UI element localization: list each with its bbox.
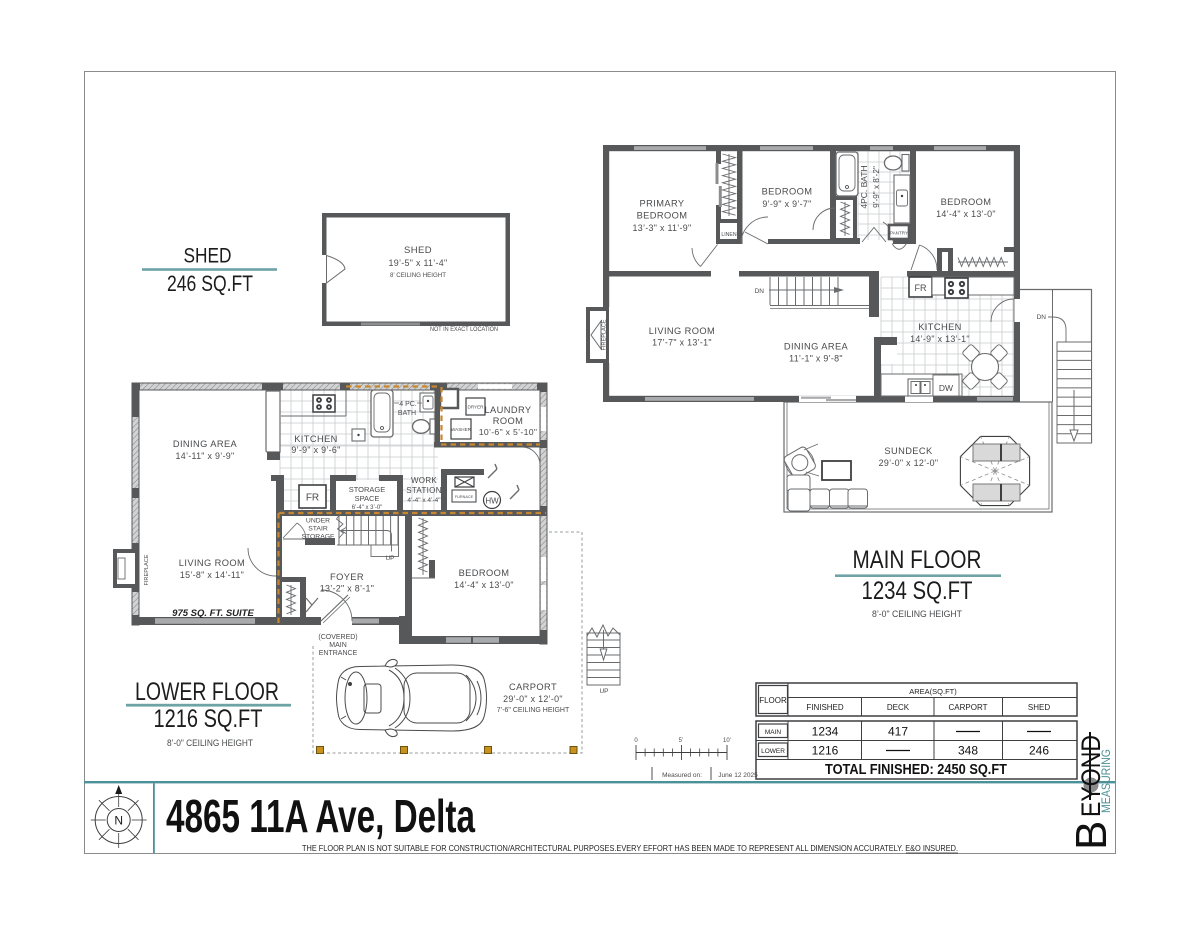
svg-text:N: N — [114, 814, 123, 828]
svg-text:8’-0" CEILING HEIGHT: 8’-0" CEILING HEIGHT — [872, 609, 962, 620]
svg-text:14’-9" x 13’-1": 14’-9" x 13’-1" — [910, 334, 970, 344]
svg-text:LOWER: LOWER — [761, 748, 785, 755]
svg-text:14’-4" x 13’-0": 14’-4" x 13’-0" — [454, 580, 514, 590]
svg-text:UNDER: UNDER — [306, 518, 330, 525]
svg-text:DECK: DECK — [887, 703, 910, 712]
svg-text:1216 SQ.FT: 1216 SQ.FT — [154, 705, 263, 733]
svg-text:KITCHEN: KITCHEN — [294, 434, 338, 444]
svg-text:14’-4" x 13’-0": 14’-4" x 13’-0" — [936, 209, 996, 219]
svg-text:(COVERED): (COVERED) — [318, 634, 357, 641]
svg-text:975 SQ. FT. SUITE: 975 SQ. FT. SUITE — [172, 608, 254, 619]
svg-text:SHED: SHED — [404, 245, 432, 256]
svg-text:4PC. BATH: 4PC. BATH — [859, 165, 869, 208]
svg-text:SUNDECK: SUNDECK — [884, 446, 933, 456]
svg-text:AREA(SQ.FT): AREA(SQ.FT) — [909, 687, 957, 696]
svg-text:246: 246 — [1029, 744, 1049, 758]
svg-text:13’-2" x 8’-1": 13’-2" x 8’-1" — [320, 584, 374, 594]
svg-text:LINEN: LINEN — [721, 232, 737, 238]
svg-text:19’-5" x 11’-4": 19’-5" x 11’-4" — [389, 258, 448, 268]
svg-text:SHED: SHED — [1028, 703, 1050, 712]
svg-text:FURNACE: FURNACE — [455, 495, 474, 499]
svg-text:8’-0" CEILING HEIGHT: 8’-0" CEILING HEIGHT — [167, 738, 253, 749]
svg-text:UP: UP — [385, 555, 394, 562]
svg-text:MEASURING: MEASURING — [1099, 749, 1113, 813]
svg-text:PRIMARY: PRIMARY — [640, 199, 685, 209]
svg-text:HW: HW — [485, 497, 499, 506]
svg-text:29’-0" x 12’-0": 29’-0" x 12’-0" — [503, 694, 563, 704]
svg-text:CARPORT: CARPORT — [949, 703, 988, 712]
svg-text:4 PC.: 4 PC. — [399, 401, 417, 408]
svg-text:ROOM: ROOM — [493, 416, 524, 426]
svg-text:7’-6" CEILING HEIGHT: 7’-6" CEILING HEIGHT — [497, 707, 570, 714]
svg-text:FINISHED: FINISHED — [806, 703, 844, 712]
svg-text:11’-1" x 9’-8": 11’-1" x 9’-8" — [789, 354, 843, 364]
svg-text:SHED: SHED — [184, 245, 232, 268]
svg-text:UP: UP — [599, 688, 608, 695]
svg-text:MAIN: MAIN — [765, 729, 782, 736]
svg-text:13’-3" x 11’-9": 13’-3" x 11’-9" — [633, 223, 692, 233]
svg-text:FR: FR — [306, 493, 319, 504]
svg-text:LOWER FLOOR: LOWER FLOOR — [135, 678, 279, 706]
svg-text:FIREPLACE: FIREPLACE — [602, 319, 608, 350]
svg-text:FLOOR: FLOOR — [759, 696, 787, 705]
svg-text:June 12 2025: June 12 2025 — [718, 772, 758, 779]
svg-text:DN: DN — [755, 288, 765, 295]
svg-text:BEDROOM: BEDROOM — [941, 197, 992, 207]
svg-text:1216: 1216 — [812, 744, 839, 758]
svg-text:KITCHEN: KITCHEN — [918, 322, 962, 332]
svg-text:ENTRANCE: ENTRANCE — [319, 650, 358, 657]
svg-text:4865 11A Ave, Delta: 4865 11A Ave, Delta — [166, 790, 475, 842]
svg-text:9’-9" x 9’-6": 9’-9" x 9’-6" — [291, 445, 340, 455]
svg-text:5’: 5’ — [679, 738, 684, 744]
svg-text:14’-11" x 9’-9": 14’-11" x 9’-9" — [176, 451, 235, 461]
svg-text:15’-8" x 14’-11": 15’-8" x 14’-11" — [180, 570, 244, 580]
svg-text:9’-9" x 9’-7": 9’-9" x 9’-7" — [762, 199, 811, 209]
svg-text:BATH: BATH — [398, 410, 416, 417]
svg-text:PANTRY: PANTRY — [890, 231, 908, 236]
svg-text:STAIR: STAIR — [308, 526, 328, 533]
svg-text:246 SQ.FT: 246 SQ.FT — [167, 271, 253, 296]
svg-text:1234: 1234 — [812, 725, 839, 739]
svg-text:CARPORT: CARPORT — [509, 682, 557, 692]
svg-text:DINING AREA: DINING AREA — [173, 439, 238, 449]
svg-text:THE FLOOR PLAN IS NOT SUITAB: THE FLOOR PLAN IS NOT SUITABLE FOR CONST… — [302, 843, 958, 853]
svg-text:29’-0" x 12’-0": 29’-0" x 12’-0" — [879, 458, 939, 468]
svg-text:LIVING ROOM: LIVING ROOM — [649, 326, 715, 336]
svg-text:STATION: STATION — [406, 486, 442, 495]
svg-text:BEDROOM: BEDROOM — [459, 568, 510, 578]
svg-text:FR: FR — [915, 283, 927, 293]
svg-text:Measured on:: Measured on: — [662, 772, 702, 779]
svg-text:8’ CEILING HEIGHT: 8’ CEILING HEIGHT — [390, 272, 446, 279]
svg-text:FOYER: FOYER — [330, 572, 364, 582]
svg-text:417: 417 — [888, 725, 908, 739]
svg-text:WORK: WORK — [411, 476, 437, 485]
svg-text:MAIN FLOOR: MAIN FLOOR — [853, 546, 982, 574]
svg-text:10’-6" x 5’-10": 10’-6" x 5’-10" — [479, 427, 537, 437]
svg-text:STORAGE: STORAGE — [349, 485, 386, 494]
svg-text:1234 SQ.FT: 1234 SQ.FT — [862, 577, 973, 605]
svg-text:NOT IN EXACT LOCATION: NOT IN EXACT LOCATION — [430, 326, 498, 333]
svg-text:TOTAL FINISHED: 2450 SQ.FT: TOTAL FINISHED: 2450 SQ.FT — [825, 762, 1007, 778]
svg-text:WASHER: WASHER — [451, 427, 472, 432]
svg-text:B: B — [1067, 821, 1116, 850]
svg-text:DINING AREA: DINING AREA — [784, 342, 849, 352]
svg-text:4’-4" x 4’-4": 4’-4" x 4’-4" — [407, 497, 441, 504]
svg-text:LIVING ROOM: LIVING ROOM — [179, 558, 245, 568]
svg-text:DN: DN — [1037, 314, 1047, 321]
svg-text:BEDROOM: BEDROOM — [762, 187, 813, 197]
svg-text:9’-9" x 8’-2": 9’-9" x 8’-2" — [872, 166, 881, 208]
svg-text:BEDROOM: BEDROOM — [637, 211, 688, 221]
svg-text:LAUNDRY: LAUNDRY — [484, 405, 531, 415]
svg-text:DW: DW — [939, 383, 953, 393]
svg-text:DRYER: DRYER — [468, 405, 485, 410]
svg-text:17’-7" x 13’-1": 17’-7" x 13’-1" — [652, 338, 712, 348]
svg-text:10’: 10’ — [723, 738, 731, 744]
svg-text:348: 348 — [958, 744, 978, 758]
svg-text:FIREPLACE: FIREPLACE — [144, 554, 150, 585]
svg-text:MAIN: MAIN — [329, 642, 347, 649]
svg-text:SPACE: SPACE — [355, 494, 380, 503]
